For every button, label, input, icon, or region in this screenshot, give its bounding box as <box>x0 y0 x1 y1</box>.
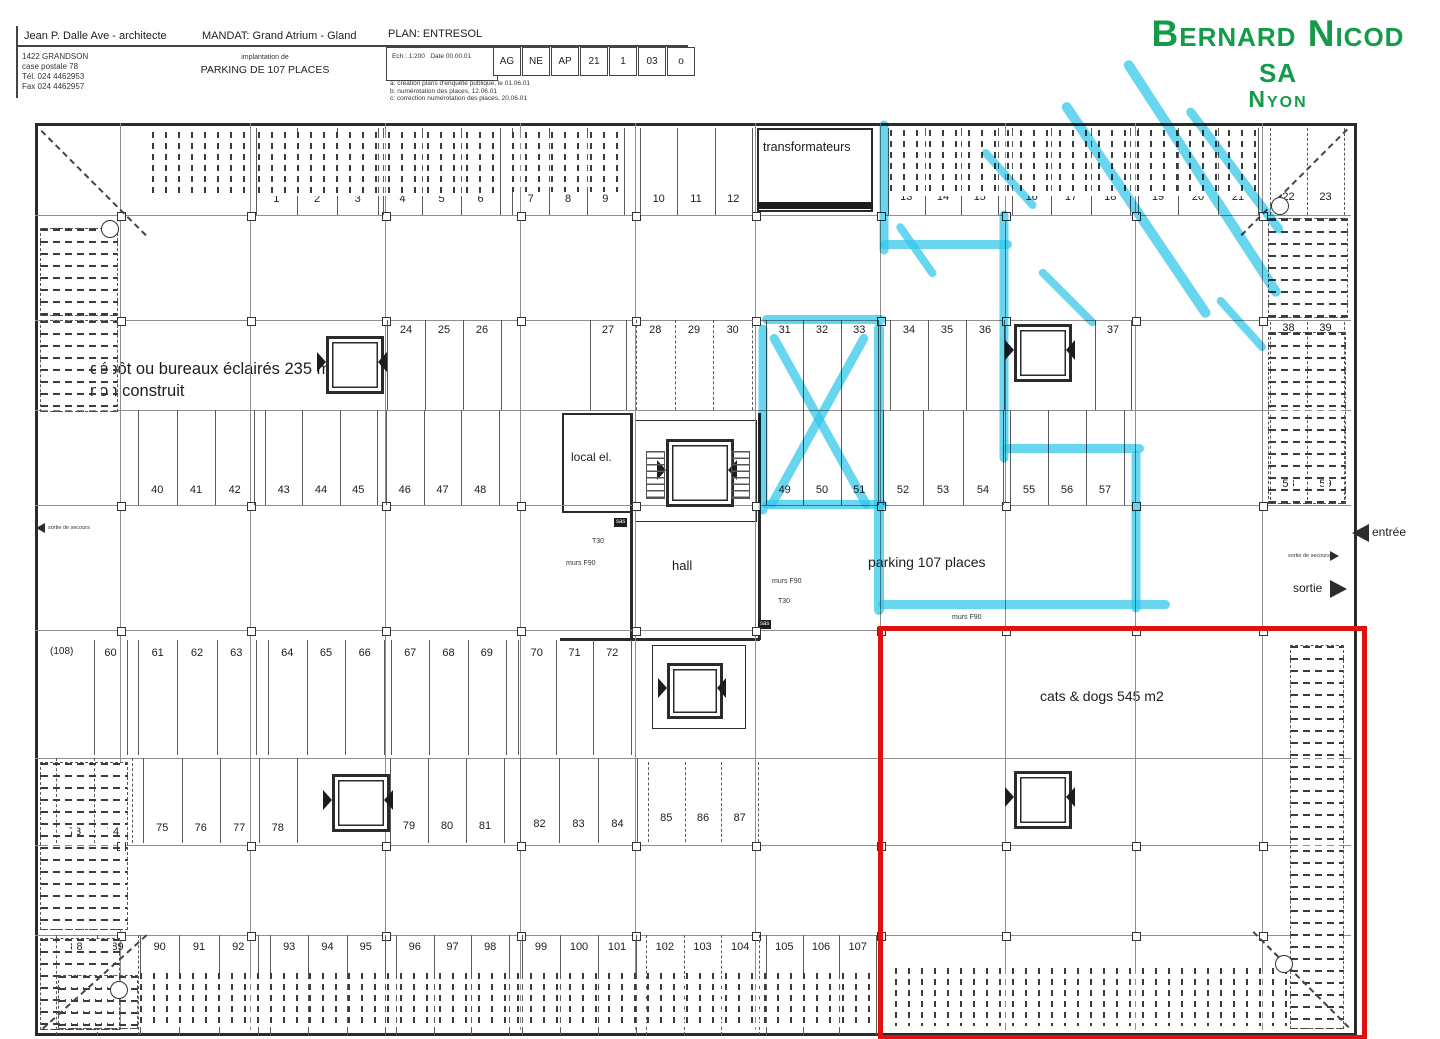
stall-number: 10 <box>653 193 665 205</box>
stall-number: 78 <box>272 822 284 834</box>
stall-divider <box>1307 128 1308 215</box>
grid-node <box>247 842 256 851</box>
stall-number: 42 <box>229 484 241 496</box>
highlighter-stroke <box>880 240 1012 249</box>
stall-number: 79 <box>403 820 415 832</box>
stall-divider <box>340 410 341 505</box>
stall-divider <box>923 410 924 505</box>
stall-divider <box>143 758 144 843</box>
grid-node <box>247 627 256 636</box>
murs-f90-label-b: murs F90 <box>772 578 802 585</box>
stall-divider <box>256 640 257 755</box>
stall-divider <box>758 762 759 842</box>
stall-number: 40 <box>151 484 163 496</box>
stall-divider <box>636 320 637 410</box>
stall-number: 107 <box>849 941 867 953</box>
murs-f90-label-a: murs F90 <box>566 560 596 567</box>
grid-node <box>117 317 126 326</box>
stall-divider <box>138 935 139 1035</box>
stall-number: 95 <box>360 941 372 953</box>
stall-number: 47 <box>436 484 448 496</box>
edge-stall-dashes <box>40 762 128 930</box>
grid-node <box>1259 317 1268 326</box>
stall-divider <box>590 320 591 410</box>
grid-node <box>517 317 526 326</box>
edge-stall-dashes <box>40 228 118 316</box>
stall-number: 50 <box>816 484 828 496</box>
grid-node <box>117 502 126 511</box>
stall-divider <box>713 320 714 410</box>
stall-divider <box>677 128 678 215</box>
stall-number: 69 <box>481 647 493 659</box>
stall-number: 83 <box>572 818 584 830</box>
stall-divider <box>876 935 877 1035</box>
stall-number: 26 <box>476 324 488 336</box>
sortie-secours-left-arrow-icon <box>36 523 45 533</box>
grid-line-vertical <box>385 123 386 1030</box>
stall-number: 72 <box>606 647 618 659</box>
floor-plan-page: Jean P. Dalle Ave - architecte MANDAT: G… <box>0 0 1440 1039</box>
stall-divider <box>715 128 716 215</box>
stall-number: 65 <box>320 647 332 659</box>
stall-number: 97 <box>446 941 458 953</box>
highlighter-stroke <box>1002 444 1144 453</box>
hall-wall-bottom <box>560 638 760 641</box>
stall-number: 77 <box>233 822 245 834</box>
stall-divider <box>752 320 753 410</box>
sortie-label: sortie <box>1293 581 1322 595</box>
elevator-door-flap <box>658 678 667 698</box>
stall-number: 29 <box>688 324 700 336</box>
highlighter-stroke <box>762 315 886 324</box>
stall-number: 91 <box>193 941 205 953</box>
stall-divider <box>424 410 425 505</box>
dimension-circle-marker <box>101 220 119 238</box>
stall-number: 11 <box>690 193 701 205</box>
sortie-secours-right-arrow-icon <box>1330 551 1339 561</box>
stall-divider <box>254 410 255 505</box>
grid-node <box>247 932 256 941</box>
stall-number: 55 <box>1023 484 1035 496</box>
stall-number: 36 <box>979 324 991 336</box>
depot-label-line1: dépôt ou bureaux éclairés 235 m2 <box>90 360 340 379</box>
grid-line-vertical <box>635 123 636 1030</box>
stall-number: 66 <box>359 647 371 659</box>
grid-node <box>382 932 391 941</box>
grid-node <box>247 212 256 221</box>
stall-divider <box>386 410 387 505</box>
elevator-door-flap <box>323 790 332 810</box>
stall-number: 84 <box>611 818 623 830</box>
stall-divider <box>963 410 964 505</box>
stall-number: 53 <box>937 484 949 496</box>
stall-number: 32 <box>816 324 828 336</box>
extra-stall-label: (108) <box>50 646 73 657</box>
stall-number: 12 <box>727 193 739 205</box>
stall-number: 70 <box>531 647 543 659</box>
stall-number: 102 <box>656 941 674 953</box>
stall-divider <box>1344 128 1345 215</box>
stall-number: 62 <box>191 647 203 659</box>
stall-number: 24 <box>400 324 412 336</box>
stall-number: 57 <box>1099 484 1111 496</box>
stall-number: 103 <box>693 941 711 953</box>
stall-divider <box>461 410 462 505</box>
stall-number: 98 <box>484 941 496 953</box>
stall-divider <box>890 320 891 410</box>
stall-divider <box>675 320 676 410</box>
stall-tick-marks <box>512 132 622 192</box>
elevator-shaft <box>326 336 384 394</box>
stall-number: 80 <box>441 820 453 832</box>
dimension-circle-marker <box>110 981 128 999</box>
edge-stall-dashes <box>1268 332 1346 504</box>
stall-number: 67 <box>404 647 416 659</box>
grid-node <box>632 502 641 511</box>
stall-number: 9 <box>602 193 608 205</box>
grid-node <box>752 842 761 851</box>
grid-node <box>632 627 641 636</box>
stall-number: 54 <box>977 484 989 496</box>
stairs-flight <box>646 451 665 499</box>
stall-divider <box>721 762 722 842</box>
stall-divider <box>215 410 216 505</box>
stall-divider <box>268 640 269 755</box>
stall-number: 85 <box>660 812 672 824</box>
stall-divider <box>648 762 649 842</box>
stall-number: 61 <box>152 647 164 659</box>
highlighter-stroke <box>878 600 1170 609</box>
stall-divider <box>259 758 260 843</box>
elevator-door-flap <box>717 678 726 698</box>
stall-divider <box>506 640 507 755</box>
elevator-door-flap <box>1066 340 1075 360</box>
stall-tick-marks <box>152 132 250 196</box>
stall-number: 104 <box>731 941 749 953</box>
cats-dogs-red-outline <box>878 626 1367 1039</box>
sortie-arrow-icon <box>1330 580 1347 598</box>
stall-number: 23 <box>1319 191 1331 203</box>
stall-divider <box>138 640 139 755</box>
sortie-secours-left-label: sortie de secours <box>48 525 90 531</box>
stall-number: 56 <box>1061 484 1073 496</box>
stall-divider <box>593 640 594 755</box>
stall-number: 93 <box>283 941 295 953</box>
stall-divider <box>425 320 426 410</box>
stall-number: 94 <box>321 941 333 953</box>
stall-number: 100 <box>570 941 588 953</box>
stall-divider <box>177 410 178 505</box>
highlighter-stroke <box>1000 211 1009 463</box>
stall-divider <box>504 758 505 843</box>
stairs-flight <box>731 451 750 499</box>
stall-divider <box>1010 410 1011 505</box>
stall-divider <box>501 320 502 410</box>
entree-label: entrée <box>1372 525 1406 539</box>
stall-number: 105 <box>775 941 793 953</box>
stall-number: 68 <box>442 647 454 659</box>
highlighter-stroke <box>874 323 884 615</box>
stall-divider <box>637 758 638 843</box>
stall-number: 43 <box>278 484 290 496</box>
dimension-circle-marker <box>1271 197 1289 215</box>
stall-number: 31 <box>779 324 791 336</box>
stall-divider <box>841 320 842 410</box>
stall-number: 81 <box>479 820 491 832</box>
stall-number: 82 <box>533 818 545 830</box>
elevator-shaft <box>1014 324 1072 382</box>
stall-divider <box>1124 410 1125 505</box>
stall-number: 35 <box>941 324 953 336</box>
highlighter-stroke <box>1132 451 1141 613</box>
elevator-shaft <box>666 439 734 507</box>
grid-node <box>247 317 256 326</box>
stall-divider <box>466 758 467 843</box>
stall-divider <box>520 758 521 843</box>
stall-divider <box>518 640 519 755</box>
hall-wall-left <box>630 413 633 640</box>
highlighter-stroke <box>759 325 768 515</box>
grid-node <box>517 842 526 851</box>
stall-divider <box>928 320 929 410</box>
stall-number: 64 <box>281 647 293 659</box>
stall-divider <box>256 128 257 215</box>
stall-number: 41 <box>190 484 202 496</box>
stall-number: 37 <box>1107 324 1119 336</box>
stall-divider <box>1095 320 1096 410</box>
stall-divider <box>966 320 967 410</box>
stall-number: 101 <box>608 941 626 953</box>
grid-node <box>517 212 526 221</box>
stall-number: 75 <box>156 822 168 834</box>
stall-divider <box>1086 410 1087 505</box>
stall-number: 87 <box>734 812 746 824</box>
stall-divider <box>685 762 686 842</box>
stall-number: 86 <box>697 812 709 824</box>
elevator-shaft <box>667 663 723 719</box>
stall-divider <box>220 758 221 843</box>
stall-divider <box>302 410 303 505</box>
stall-divider <box>177 640 178 755</box>
stall-number: 106 <box>812 941 830 953</box>
stall-divider <box>127 640 128 755</box>
stall-number: 44 <box>315 484 327 496</box>
entree-arrow-icon <box>1352 524 1369 542</box>
grid-line-vertical <box>250 123 251 1030</box>
grid-node <box>632 842 641 851</box>
stall-divider <box>429 640 430 755</box>
stall-number: 48 <box>474 484 486 496</box>
elevator-door-flap <box>378 352 387 372</box>
stall-divider <box>387 320 388 410</box>
stall-tick-marks <box>258 132 496 196</box>
stall-divider <box>138 410 139 505</box>
stall-divider <box>624 128 625 215</box>
grid-node <box>517 502 526 511</box>
stall-number: 52 <box>897 484 909 496</box>
stall-number: 45 <box>352 484 364 496</box>
grid-node <box>1132 317 1141 326</box>
stall-divider <box>377 410 378 505</box>
stall-number: 71 <box>568 647 580 659</box>
grid-node <box>517 627 526 636</box>
grid-line-horizontal <box>35 320 1351 321</box>
stall-divider <box>640 128 641 215</box>
sas-label-a: sas <box>614 518 627 527</box>
stall-number: 92 <box>232 941 244 953</box>
transformateurs-label: transformateurs <box>763 140 851 154</box>
stall-number: 63 <box>230 647 242 659</box>
stall-divider <box>297 758 298 843</box>
stall-number: 25 <box>438 324 450 336</box>
elevator-door-flap <box>317 352 326 372</box>
stall-number: 7 <box>528 193 534 205</box>
murs-f90-label-c: murs F90 <box>952 614 982 621</box>
transformateurs-room-sill <box>757 202 873 209</box>
stall-number: 30 <box>727 324 739 336</box>
grid-line-vertical <box>755 123 756 1030</box>
stall-divider <box>345 640 346 755</box>
hall-label: hall <box>672 558 692 573</box>
grid-node <box>752 627 761 636</box>
stall-divider <box>1131 320 1132 410</box>
stall-number: 8 <box>565 193 571 205</box>
stall-divider <box>265 410 266 505</box>
grid-node <box>117 627 126 636</box>
stall-divider <box>94 640 95 755</box>
stall-number: 28 <box>649 324 661 336</box>
stall-divider <box>598 758 599 843</box>
stall-divider <box>556 640 557 755</box>
stall-divider <box>752 128 753 215</box>
grid-node <box>1259 502 1268 511</box>
stall-number: 27 <box>602 324 614 336</box>
highlighter-stroke <box>880 121 889 255</box>
stall-divider <box>631 640 632 755</box>
stall-divider <box>391 640 392 755</box>
stall-tick-marks <box>140 973 876 1027</box>
stall-number: 34 <box>903 324 915 336</box>
stall-divider <box>428 758 429 843</box>
stall-divider <box>499 410 500 505</box>
stall-divider <box>132 758 133 843</box>
stall-number: 90 <box>154 941 166 953</box>
stall-divider <box>626 320 627 410</box>
stall-divider <box>468 640 469 755</box>
grid-line-vertical <box>520 123 521 1030</box>
t30-label-b: T30 <box>778 598 790 605</box>
stall-divider <box>182 758 183 843</box>
grid-line-horizontal <box>35 410 1351 411</box>
stall-divider <box>803 410 804 505</box>
stall-divider <box>307 640 308 755</box>
stall-number: 76 <box>195 822 207 834</box>
grid-line-horizontal <box>35 215 1351 216</box>
stall-divider <box>500 128 501 215</box>
stall-number: 99 <box>535 941 547 953</box>
grid-node <box>752 212 761 221</box>
stall-divider <box>217 640 218 755</box>
stall-divider <box>1048 410 1049 505</box>
stall-divider <box>384 640 385 755</box>
stall-number: 96 <box>409 941 421 953</box>
stall-number: 46 <box>399 484 411 496</box>
local-el-label: local el. <box>571 450 612 464</box>
plan-canvas: transformateurs dépôt ou bureaux éclairé… <box>0 0 1440 1039</box>
grid-node <box>382 627 391 636</box>
sortie-secours-right-label: sortie de secours <box>1288 553 1330 559</box>
t30-label-a: T30 <box>592 538 604 545</box>
elevator-door-flap <box>384 790 393 810</box>
grid-node <box>382 842 391 851</box>
stall-number: 60 <box>104 647 116 659</box>
stall-divider <box>463 320 464 410</box>
edge-stall-dashes <box>40 320 118 412</box>
parking-label: parking 107 places <box>868 554 986 570</box>
stall-divider <box>559 758 560 843</box>
elevator-shaft <box>332 774 390 832</box>
